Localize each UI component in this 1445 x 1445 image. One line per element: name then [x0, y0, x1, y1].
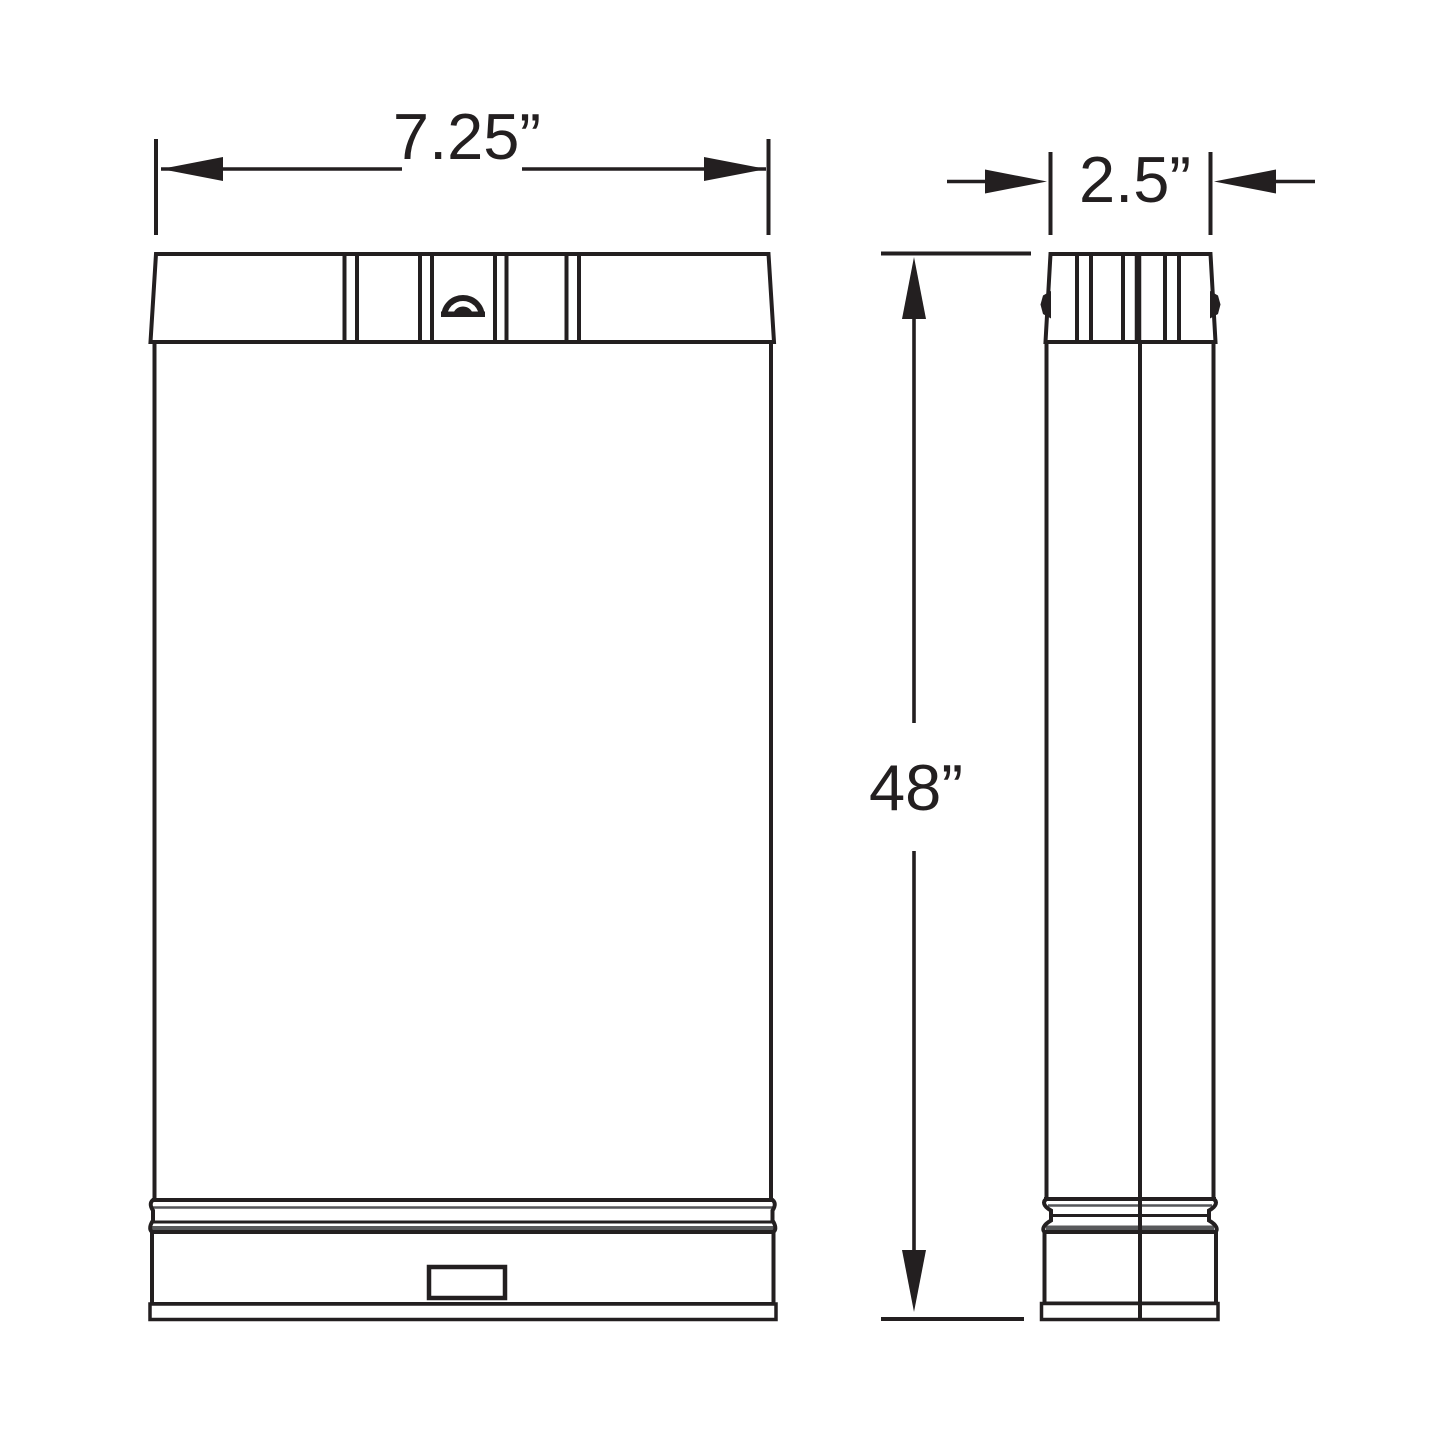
svg-text:7.25”: 7.25”	[393, 100, 541, 173]
svg-text:2.5”: 2.5”	[1079, 143, 1191, 216]
svg-text:48”: 48”	[869, 751, 963, 824]
